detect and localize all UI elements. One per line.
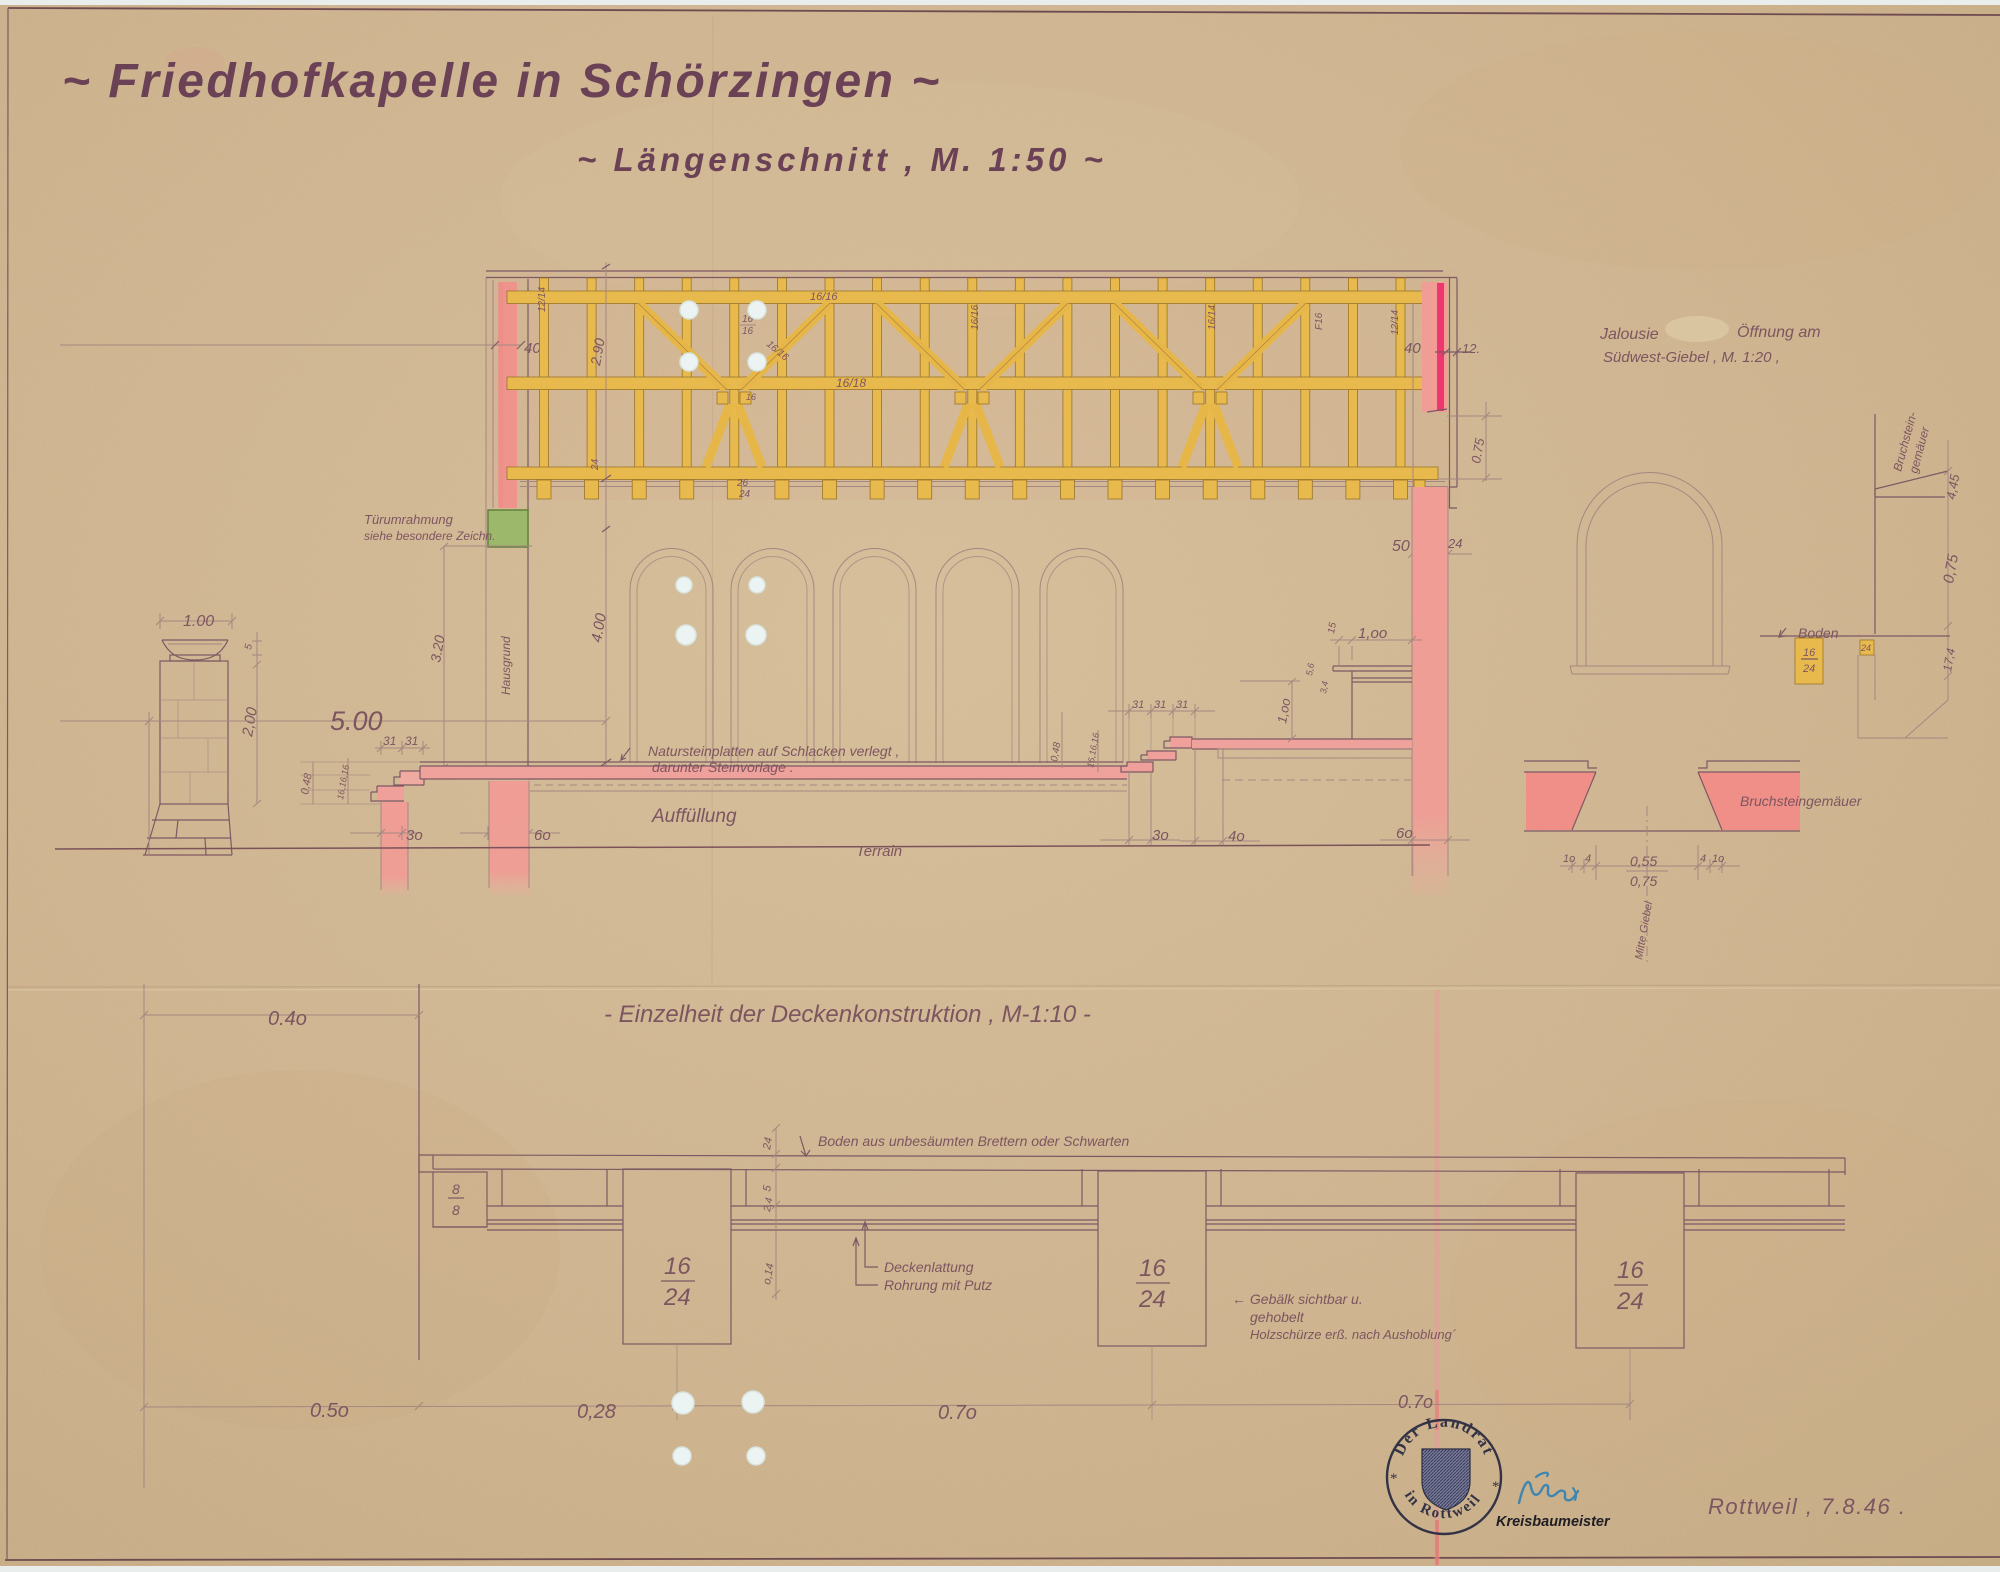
svg-text:31: 31 <box>1176 699 1188 711</box>
svg-text:24: 24 <box>590 458 601 471</box>
svg-text:← Gebälk sichtbar u.: ← Gebälk sichtbar u. <box>1232 1291 1363 1307</box>
svg-text:0.4o: 0.4o <box>268 1008 307 1030</box>
svg-text:*: * <box>1492 1479 1500 1495</box>
svg-text:Bruchsteingemäuer: Bruchsteingemäuer <box>1740 793 1863 809</box>
svg-text:12/14: 12/14 <box>1390 310 1401 335</box>
svg-text:24: 24 <box>738 489 751 500</box>
svg-text:Auffüllung: Auffüllung <box>651 806 737 827</box>
svg-text:gehobelt: gehobelt <box>1250 1309 1305 1325</box>
svg-text:4: 4 <box>1585 853 1591 865</box>
svg-text:12.: 12. <box>1462 341 1480 356</box>
svg-text:Kreisbaumeister: Kreisbaumeister <box>1496 1514 1611 1530</box>
svg-text:31: 31 <box>1154 699 1166 711</box>
svg-text:6o: 6o <box>1396 825 1413 842</box>
svg-text:0.5o: 0.5o <box>310 1400 349 1422</box>
svg-text:~ Längenschnitt , M. 1:50 ~: ~ Längenschnitt , M. 1:50 ~ <box>577 141 1107 178</box>
svg-text:16: 16 <box>742 326 754 337</box>
svg-text:24: 24 <box>761 1136 775 1151</box>
svg-text:16/18: 16/18 <box>836 376 866 390</box>
svg-text:16: 16 <box>1803 647 1816 659</box>
svg-text:3o: 3o <box>1152 827 1169 844</box>
svg-text:Rottweil , 7.8.46 .: Rottweil , 7.8.46 . <box>1708 1494 1906 1519</box>
svg-text:31: 31 <box>405 734 418 748</box>
svg-text:3,4: 3,4 <box>1318 680 1330 694</box>
svg-text:1,oo: 1,oo <box>1358 625 1387 642</box>
svg-text:Südwest-Giebel , M. 1:20 ,: Südwest-Giebel , M. 1:20 , <box>1603 349 1780 366</box>
svg-text:darunter Steinvorlage .: darunter Steinvorlage . <box>652 759 794 775</box>
svg-text:16: 16 <box>664 1253 691 1280</box>
svg-text:Rohrung mit Putz: Rohrung mit Putz <box>884 1277 992 1293</box>
svg-text:24: 24 <box>1616 1288 1644 1315</box>
svg-text:16/16: 16/16 <box>970 305 981 330</box>
svg-text:1o: 1o <box>1712 853 1724 865</box>
svg-text:Türumrahmung: Türumrahmung <box>364 512 454 527</box>
svg-text:24: 24 <box>663 1284 691 1311</box>
svg-text:0.7o: 0.7o <box>1398 1392 1433 1412</box>
svg-text:Deckenlattung: Deckenlattung <box>884 1259 974 1275</box>
svg-text:16: 16 <box>1617 1257 1644 1284</box>
svg-text:1o: 1o <box>1563 853 1575 865</box>
svg-text:50: 50 <box>1392 538 1410 555</box>
svg-text:Holzschürze erß. nach Aushoblu: Holzschürze erß. nach Aushoblung´ <box>1250 1327 1457 1342</box>
svg-text:4: 4 <box>1700 853 1706 865</box>
svg-text:3o: 3o <box>406 827 423 844</box>
svg-text:*: * <box>1390 1471 1398 1487</box>
svg-text:8: 8 <box>452 1181 460 1197</box>
svg-text:0,75: 0,75 <box>1630 873 1657 889</box>
svg-text:24: 24 <box>1447 536 1462 551</box>
svg-text:Natursteinplatten auf Schlacke: Natursteinplatten auf Schlacken verlegt … <box>648 743 899 759</box>
svg-text:24: 24 <box>1802 663 1815 675</box>
svg-text:40: 40 <box>524 340 541 357</box>
svg-text:31: 31 <box>383 734 396 748</box>
svg-text:0,28: 0,28 <box>577 1401 616 1423</box>
svg-text:Hausgrund: Hausgrund <box>499 636 513 695</box>
svg-text:5.00: 5.00 <box>330 706 383 736</box>
svg-text:~ Friedhofkapelle in Schörzing: ~ Friedhofkapelle in Schörzingen ~ <box>62 55 942 108</box>
svg-text:4o: 4o <box>1228 828 1245 845</box>
svg-text:1.00: 1.00 <box>183 613 214 630</box>
svg-text:16/16: 16/16 <box>810 291 838 303</box>
svg-text:6o: 6o <box>534 827 551 844</box>
svg-text:5,6: 5,6 <box>1304 662 1316 676</box>
svg-text:16: 16 <box>746 392 756 402</box>
svg-text:8: 8 <box>452 1202 460 1218</box>
svg-text:0,55: 0,55 <box>1630 853 1657 869</box>
svg-text:- Einzelheit der Deckenkonstru: - Einzelheit der Deckenkonstruktion , M-… <box>604 1001 1091 1028</box>
svg-text:40: 40 <box>1404 340 1421 357</box>
svg-text:24: 24 <box>1138 1286 1166 1313</box>
svg-text:0.7o: 0.7o <box>938 1402 977 1424</box>
svg-text:Jalousie: Jalousie <box>1599 326 1659 343</box>
svg-text:siehe besondere Zeichn.: siehe besondere Zeichn. <box>364 529 495 543</box>
svg-text:Öffnung am: Öffnung am <box>1737 323 1821 341</box>
svg-text:F16: F16 <box>1314 312 1325 330</box>
svg-text:24: 24 <box>1860 643 1871 653</box>
svg-text:Boden aus unbesäumten Brettern: Boden aus unbesäumten Brettern oder Schw… <box>818 1133 1130 1149</box>
svg-text:26: 26 <box>736 478 749 489</box>
svg-text:31: 31 <box>1132 699 1144 711</box>
svg-text:12/14: 12/14 <box>537 287 548 312</box>
svg-text:16/14: 16/14 <box>1207 305 1218 330</box>
svg-text:Terrain: Terrain <box>856 843 902 860</box>
svg-text:16: 16 <box>1139 1255 1166 1282</box>
